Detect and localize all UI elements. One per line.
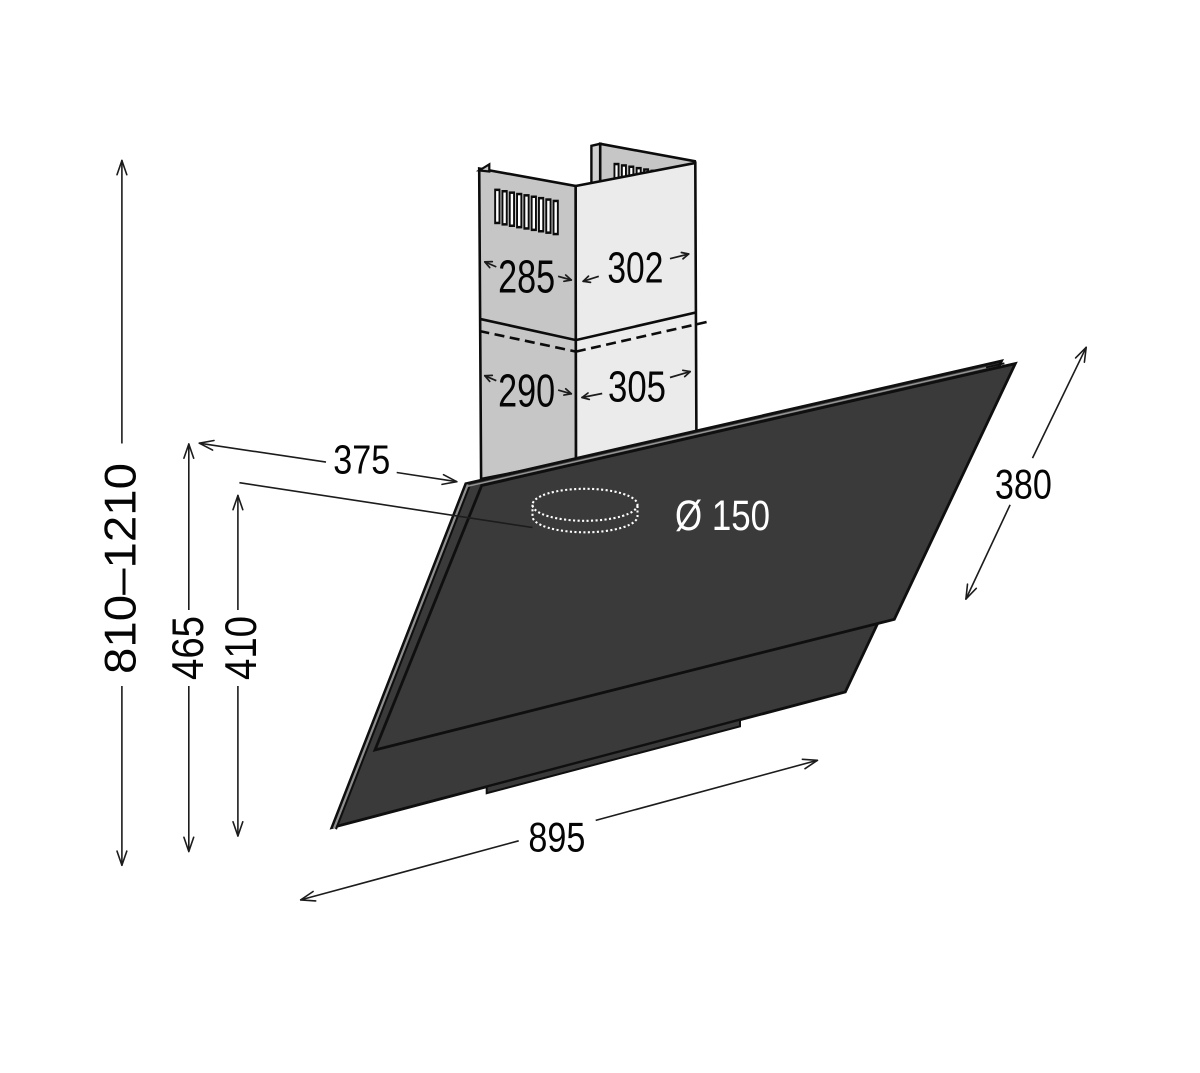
svg-text:380: 380 — [995, 461, 1052, 508]
svg-text:810–1210: 810–1210 — [96, 463, 145, 674]
svg-text:895: 895 — [528, 813, 585, 860]
svg-text:290: 290 — [498, 364, 555, 416]
svg-text:302: 302 — [607, 245, 663, 293]
svg-text:Ø 150: Ø 150 — [675, 492, 770, 540]
svg-text:375: 375 — [333, 437, 390, 483]
svg-text:285: 285 — [498, 251, 555, 303]
svg-text:465: 465 — [164, 616, 213, 680]
svg-text:410: 410 — [217, 616, 266, 680]
svg-text:305: 305 — [608, 364, 666, 412]
